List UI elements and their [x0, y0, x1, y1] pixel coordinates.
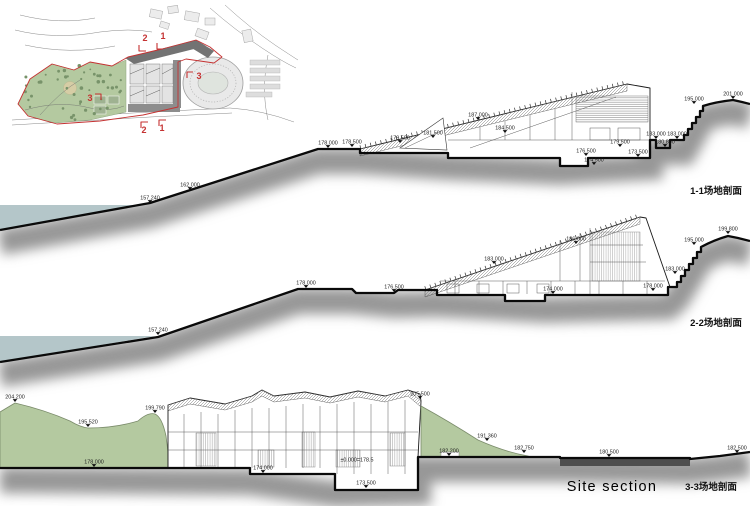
tree-dot-icon — [109, 74, 112, 77]
elevation-marker: ±0.000=178.5 — [340, 458, 373, 464]
elevation-marker: 201.000 — [723, 92, 743, 99]
elevation-marker: 191.360 — [477, 434, 497, 441]
elevation-marker: 199.790 — [145, 406, 165, 413]
plan-section-number: 2 — [142, 33, 147, 43]
marker-text: 1 — [159, 123, 164, 133]
section-1-title: 1-1场地剖面 — [690, 185, 742, 197]
tree-dot-icon — [107, 86, 110, 89]
tree-dot-icon — [102, 80, 105, 83]
tree-dot-icon — [84, 109, 87, 112]
tree-dot-icon — [88, 89, 90, 91]
road-strip-3 — [560, 458, 690, 466]
tree-dot-icon — [80, 78, 82, 80]
tree-dot-icon — [89, 69, 91, 71]
tree-dot-icon — [119, 90, 122, 93]
tree-dot-icon — [111, 86, 114, 89]
plan-section-number: 3 — [196, 71, 201, 81]
tree-dot-icon — [66, 87, 69, 90]
tree-dot-icon — [45, 74, 47, 76]
tree-dot-icon — [79, 100, 82, 103]
tree-dot-icon — [120, 79, 122, 81]
tree-dot-icon — [115, 86, 118, 89]
tree-dot-icon — [93, 73, 96, 76]
tree-dot-icon — [27, 99, 29, 101]
tree-dot-icon — [39, 80, 43, 84]
hill-left-3 — [0, 403, 168, 468]
tree-dot-icon — [96, 74, 99, 77]
section-3-3: 204.200195.520199.790178.000174.000±0.00… — [0, 390, 750, 495]
elevation-marker: 195.000 — [684, 238, 704, 245]
plan-section-number: 1 — [159, 123, 164, 133]
section-2-title: 2-2场地剖面 — [690, 317, 742, 329]
elevation-marker: 199.800 — [718, 227, 738, 234]
architectural-sheet: 213321 157.240162.000178.000178.500179.5… — [0, 0, 750, 506]
tree-dot-icon — [99, 108, 102, 111]
tree-dot-icon — [62, 107, 65, 110]
elevation-marker: 178.000 — [318, 141, 338, 148]
elevation-marker: 178.500 — [342, 140, 362, 147]
tree-dot-icon — [57, 78, 59, 80]
drawing-canvas: 213321 157.240162.000178.000178.500179.5… — [0, 0, 750, 506]
tree-dot-icon — [106, 107, 109, 110]
sheet-caption: Site section — [567, 479, 658, 495]
elevation-marker: 195.000 — [684, 97, 704, 104]
section-3-title: 3-3场地剖面 — [685, 481, 737, 493]
marker-text: 2 — [141, 125, 146, 135]
tree-dot-icon — [73, 93, 76, 96]
tree-dot-icon — [80, 86, 84, 90]
tree-dot-icon — [74, 118, 77, 121]
tree-dot-icon — [79, 103, 81, 105]
elevation-marker: 182.750 — [514, 446, 534, 453]
plan-section-number: 1 — [160, 31, 165, 41]
plan-section-number: 2 — [141, 125, 146, 135]
site-plan: 213321 — [12, 5, 298, 135]
tree-dot-icon — [93, 112, 96, 115]
plan-stadium — [183, 57, 243, 109]
elevation-marker: 204.200 — [5, 395, 25, 402]
tree-dot-icon — [57, 70, 60, 73]
elevation-marker: 183.000 — [665, 267, 685, 274]
marker-text: 3 — [196, 71, 201, 81]
marker-text: ±0.000=178.5 — [340, 458, 373, 464]
tree-dot-icon — [97, 80, 101, 84]
tree-dot-icon — [30, 95, 33, 98]
tree-dot-icon — [67, 75, 69, 77]
plan-main-buildings — [130, 64, 173, 103]
plan-parking — [246, 60, 280, 97]
tree-dot-icon — [63, 69, 66, 72]
elevation-marker: 180.500 — [599, 450, 619, 457]
tree-dot-icon — [29, 106, 31, 108]
marker-text: 1 — [160, 31, 165, 41]
elevation-marker: 178.000 — [296, 281, 316, 288]
tree-dot-icon — [24, 76, 27, 79]
elevation-marker: 195.520 — [78, 420, 98, 427]
plan-section-number: 3 — [87, 93, 92, 103]
section-2-2: 157.240178.000176.500183.000186.000174.0… — [0, 215, 750, 374]
marker-text: 3 — [87, 93, 92, 103]
tree-dot-icon — [72, 114, 75, 117]
tree-dot-icon — [83, 71, 85, 73]
marker-text: 2 — [142, 33, 147, 43]
